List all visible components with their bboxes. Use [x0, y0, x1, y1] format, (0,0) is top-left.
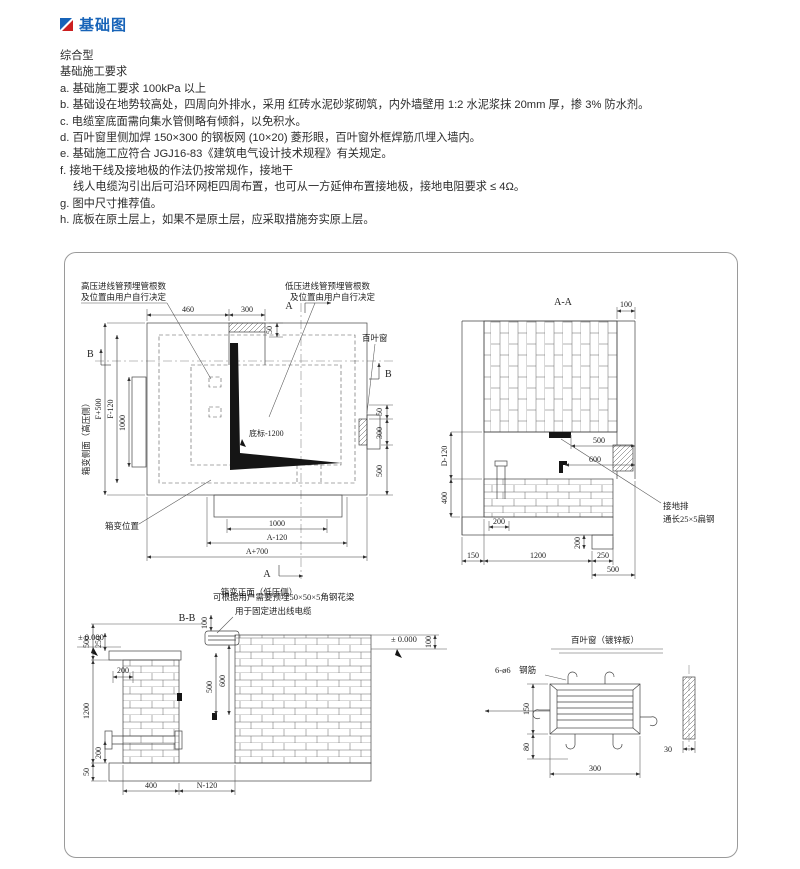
grounding-bar-label-2: 通长25×5扁钢	[663, 514, 715, 524]
bb-structure	[105, 631, 371, 781]
rebar-label: 6-ø6 钢筋	[495, 665, 536, 675]
section-aa-drawing: A-A 100 500 600 D-120	[437, 289, 732, 589]
dim-aa-500b: 500	[607, 565, 619, 574]
slope-wedge	[230, 343, 341, 470]
dim-aa-600: 600	[589, 455, 601, 464]
dim-aa-100: 100	[620, 300, 632, 309]
dim-top-50: 50	[265, 326, 274, 334]
angle-steel-label-1: 可根据用户需要预埋50×50×5角钢花梁	[213, 592, 355, 602]
page-header: 基础图	[60, 14, 127, 35]
dim-left-1000: 1000	[118, 415, 127, 431]
louver-dimensions: 150 80 300 30	[522, 684, 695, 778]
dim-bottom-a120: A-120	[267, 533, 287, 542]
note-line-f-cont: 线人电缆沟引出后可沿环网柜四周布置，也可从一方延伸布置接地极，接地电阻要求 ≤ …	[60, 179, 760, 195]
section-a-top-marker: A	[285, 301, 293, 312]
aa-structure	[462, 321, 635, 549]
dim-bb-250: 250	[94, 636, 103, 648]
section-bb-title: B-B	[179, 613, 196, 624]
dim-right-300: 300	[375, 427, 384, 439]
note-line-a: a. 基础施工要求 100kPa 以上	[60, 81, 760, 97]
embed-detail-1	[177, 693, 182, 701]
grounding-bar-label-1: 接地排	[663, 501, 689, 511]
louver-title: 百叶窗（镀锌板）	[571, 635, 639, 645]
note-line-c: c. 电缆室底面需向集水管侧略有倾斜，以免积水。	[60, 114, 760, 130]
dim-bottom-a700: A+700	[246, 547, 268, 556]
dim-louver-30: 30	[664, 745, 672, 754]
dim-bb-400: 400	[145, 781, 157, 790]
dim-louver-300: 300	[589, 764, 601, 773]
box-position-label: 箱变位置	[105, 521, 140, 531]
dim-bb-200h: 200	[117, 666, 129, 675]
dim-bb-600: 600	[218, 675, 227, 687]
dim-aa-150: 150	[467, 551, 479, 560]
dim-aa-250: 250	[597, 551, 609, 560]
page-title: 基础图	[79, 14, 127, 35]
note-line-h: h. 底板在原土层上，如果不是原土层，应采取措施夯实原上层。	[60, 212, 760, 228]
note-line-g: g. 图中尺寸推荐值。	[60, 196, 760, 212]
dim-bb-200v: 200	[94, 747, 103, 759]
note-line-e: e. 基础施工应符合 JGJ16-83《建筑电气设计技术规程》有关规定。	[60, 146, 760, 162]
bb-angle-steel-label: 可根据用户需要预埋50×50×5角钢花梁 用于固定进出线电缆	[213, 592, 355, 633]
dim-bb-50: 50	[82, 768, 91, 776]
louver-plan-label: 百叶窗	[362, 333, 388, 343]
louver-front-view	[533, 672, 657, 749]
angle-steel-label-2: 用于固定进出线电缆	[235, 606, 312, 616]
dim-aa-400: 400	[440, 492, 449, 504]
dim-left-f120: F-120	[106, 399, 115, 418]
hv-conduit-label-1: 高压进线管预埋管根数	[81, 281, 167, 291]
louver-detail-drawing: 百叶窗（镀锌板） 6-ø6 钢筋 150 80	[455, 629, 733, 794]
note-type: 综合型	[60, 48, 760, 64]
section-bb-drawing: 可根据用户需要预埋50×50×5角钢花梁 用于固定进出线电缆 B-B ± 0.0…	[75, 589, 455, 829]
dim-aa-200h: 200	[493, 517, 505, 526]
dim-bb-100: 100	[200, 617, 209, 629]
dim-bb-1200: 1200	[82, 703, 91, 719]
dim-louver-80: 80	[522, 743, 531, 751]
plan-outline	[132, 323, 380, 517]
note-line-f: f. 接地干线及接地极的作法仍按常规作，接地干	[60, 163, 760, 179]
level-right-label: ± 0.000	[391, 634, 417, 644]
plan-side-caption: 箱变侧面（高压侧）	[81, 399, 91, 476]
drawing-sheet: 底标-1200 高压进线管预埋管根数 及位置由用户自行决定 低压进线管预埋管根数…	[64, 252, 738, 858]
section-b-right-marker: B	[385, 369, 392, 380]
plan-view-drawing: 底标-1200 高压进线管预埋管根数 及位置由用户自行决定 低压进线管预埋管根数…	[79, 277, 414, 612]
floor-level-marker	[240, 439, 246, 447]
dim-right-500: 500	[375, 465, 384, 477]
dim-bb-n120: N-120	[197, 781, 217, 790]
grounding-bar	[549, 432, 571, 438]
dim-aa-200v: 200	[573, 537, 582, 549]
louver-side-view	[683, 665, 695, 751]
dim-right-50: 50	[375, 408, 384, 416]
floor-level-label: 底标-1200	[249, 428, 284, 438]
dim-aa-d120: D-120	[440, 446, 449, 466]
section-aa-title: A-A	[554, 297, 573, 308]
dim-top-460: 460	[182, 305, 194, 314]
dim-aa-1200: 1200	[530, 551, 546, 560]
foundation-diagram-page: { "colors": { "accent_blue": "#1763b8", …	[0, 0, 800, 869]
dim-louver-150: 150	[522, 703, 531, 715]
dim-bottom-1000: 1000	[269, 519, 285, 528]
section-marker-icon	[60, 18, 73, 31]
hv-conduit-label-2: 及位置由用户自行决定	[81, 292, 167, 302]
construction-notes: 综合型 基础施工要求 a. 基础施工要求 100kPa 以上 b. 基础设在地势…	[60, 48, 760, 228]
dim-left-f500: F+500	[94, 399, 103, 420]
dim-bb-100r: 100	[424, 636, 433, 648]
dim-aa-500: 500	[593, 436, 605, 445]
note-line-b: b. 基础设在地势较高处，四周向外排水，采用 红砖水泥砂浆砌筑，内外墙壁用 1:…	[60, 97, 760, 113]
lv-conduit-label-1: 低压进线管预埋管根数	[285, 281, 371, 291]
dim-top-300: 300	[241, 305, 253, 314]
plan-cut-lines	[95, 303, 393, 579]
note-requirement-heading: 基础施工要求	[60, 64, 760, 80]
dim-bb-500: 500	[82, 636, 91, 648]
lv-conduit-label-2: 及位置由用户自行决定	[290, 292, 376, 302]
bracket-detail	[559, 461, 567, 473]
section-b-left-marker: B	[87, 349, 94, 360]
section-a-bottom-marker: A	[263, 569, 271, 580]
note-line-d: d. 百叶窗里侧加焊 150×300 的钢板网 (10×20) 菱形眼，百叶窗外…	[60, 130, 760, 146]
dim-bb-500m: 500	[205, 681, 214, 693]
